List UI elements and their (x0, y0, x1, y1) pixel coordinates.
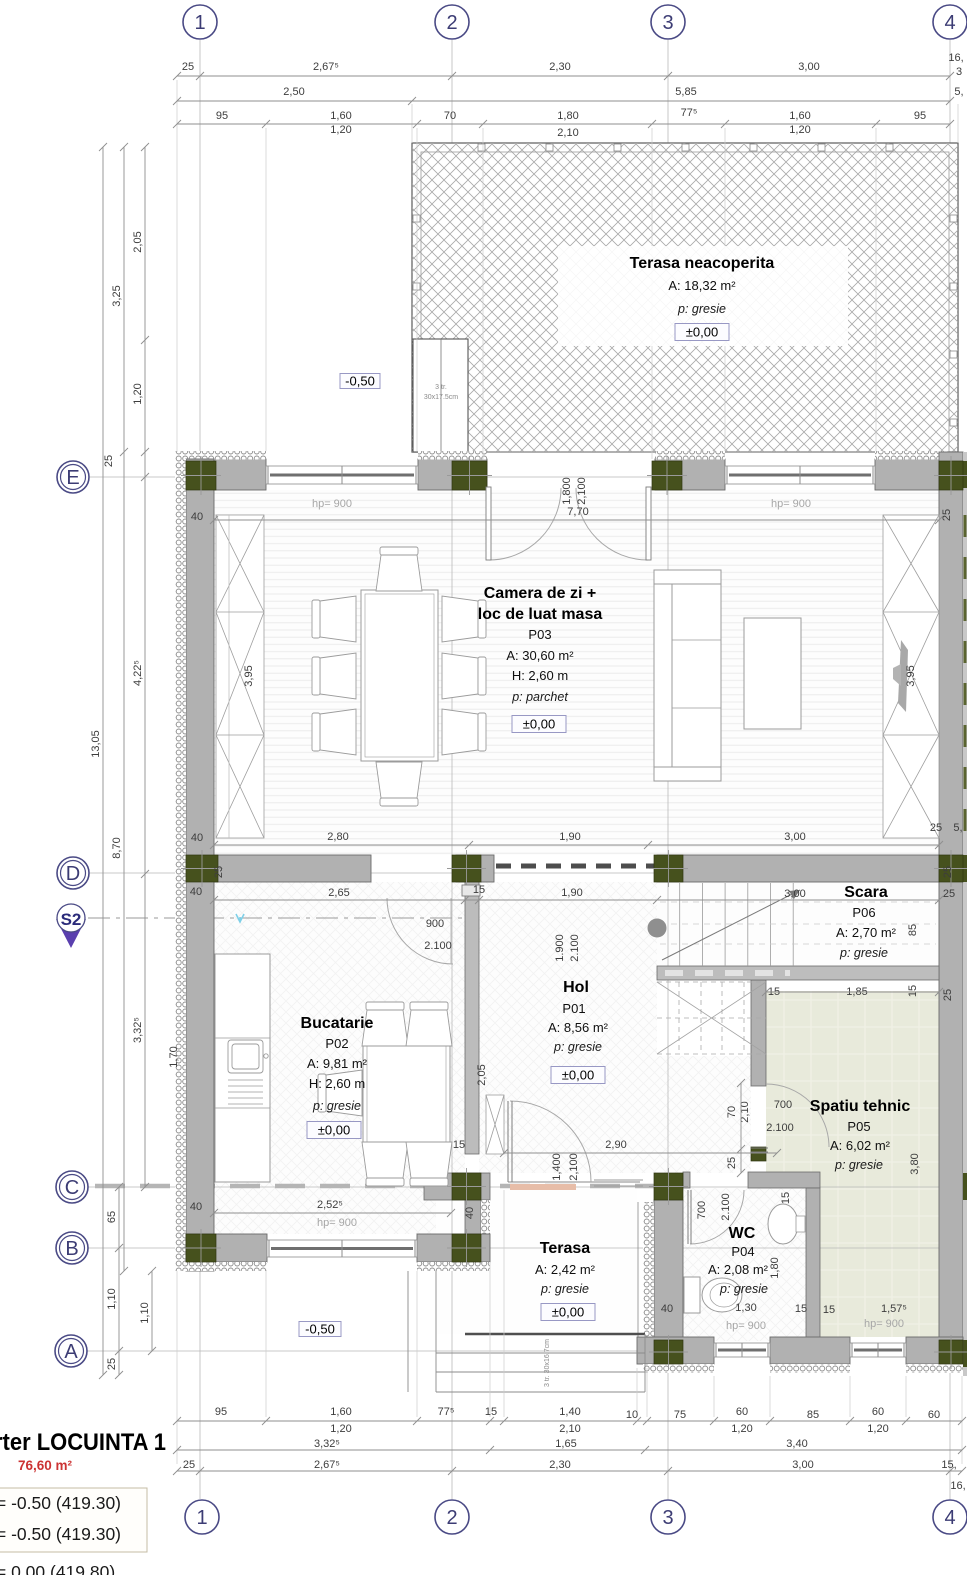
svg-text:25: 25 (943, 888, 955, 900)
svg-text:S2: S2 (61, 910, 82, 929)
svg-text:D: D (66, 863, 80, 885)
svg-text:5,: 5, (954, 86, 963, 98)
svg-text:1,20: 1,20 (330, 124, 351, 136)
svg-text:2,100: 2,100 (576, 477, 588, 505)
svg-text:60: 60 (872, 1406, 884, 1418)
svg-text:1.900: 1.900 (554, 934, 566, 962)
svg-text:1,65: 1,65 (555, 1438, 576, 1450)
svg-text:30x17.5cm: 30x17.5cm (424, 394, 458, 401)
svg-text:3,95: 3,95 (243, 665, 255, 686)
svg-text:2,80: 2,80 (327, 831, 348, 843)
svg-text:5,: 5, (953, 822, 962, 834)
svg-text:40: 40 (191, 511, 203, 523)
svg-text:16,: 16, (950, 1480, 965, 1492)
svg-text:10: 10 (626, 1409, 638, 1421)
svg-text:= -0.50 (419.30): = -0.50 (419.30) (0, 1493, 121, 1513)
svg-text:2,30: 2,30 (549, 1459, 570, 1471)
svg-text:loc de luat masa: loc de luat masa (478, 606, 603, 623)
svg-text:3,00: 3,00 (784, 831, 805, 843)
svg-text:15: 15 (453, 1139, 465, 1151)
svg-text:75: 75 (674, 1409, 686, 1421)
svg-text:WC: WC (729, 1225, 756, 1242)
svg-text:Camera de zi +: Camera de zi + (484, 585, 597, 602)
svg-text:p: gresie: p: gresie (719, 1282, 768, 1296)
svg-text:A: A (64, 1341, 78, 1363)
svg-text:77⁵: 77⁵ (681, 107, 698, 119)
svg-text:1,20: 1,20 (330, 1423, 351, 1435)
svg-text:1: 1 (196, 1507, 207, 1529)
svg-text:95: 95 (215, 1406, 227, 1418)
svg-text:±0,00: ±0,00 (523, 717, 555, 732)
svg-text:3,32⁵: 3,32⁵ (314, 1438, 340, 1450)
svg-text:7,70: 7,70 (567, 506, 588, 518)
svg-text:1,60: 1,60 (330, 1406, 351, 1418)
svg-text:rter LOCUINTA 1: rter LOCUINTA 1 (0, 1429, 166, 1456)
svg-text:700: 700 (774, 1099, 792, 1111)
svg-text:3,00: 3,00 (798, 61, 819, 73)
svg-text:hp= 900: hp= 900 (312, 498, 352, 510)
svg-text:-0,50: -0,50 (345, 374, 375, 389)
svg-text:2,05: 2,05 (476, 1064, 488, 1085)
svg-text:2.100: 2.100 (720, 1193, 732, 1221)
svg-text:1,57⁵: 1,57⁵ (881, 1303, 907, 1315)
svg-text:1,40: 1,40 (559, 1406, 580, 1418)
svg-text:P03: P03 (528, 627, 551, 642)
svg-text:25: 25 (213, 866, 225, 878)
svg-text:5,85: 5,85 (675, 86, 696, 98)
svg-text:76,60 m²: 76,60 m² (18, 1458, 73, 1473)
svg-text:1,10: 1,10 (139, 1302, 151, 1323)
svg-text:700: 700 (696, 1201, 708, 1219)
svg-text:25: 25 (182, 61, 194, 73)
svg-text:15: 15 (795, 1303, 807, 1315)
svg-text:2,90: 2,90 (605, 1139, 626, 1151)
svg-text:3 tr.: 3 tr. (435, 384, 447, 391)
svg-text:70: 70 (444, 110, 456, 122)
svg-text:1,80: 1,80 (557, 110, 578, 122)
svg-text:15,: 15, (941, 1459, 956, 1471)
svg-text:= 0.00 (419.80): = 0.00 (419.80) (0, 1562, 115, 1575)
svg-text:2,100: 2,100 (568, 1153, 580, 1181)
svg-text:2,05: 2,05 (132, 231, 144, 252)
svg-text:2,52⁵: 2,52⁵ (317, 1199, 343, 1211)
svg-text:40: 40 (464, 1207, 476, 1219)
svg-text:3: 3 (662, 12, 673, 34)
svg-text:A: 8,56 m²: A: 8,56 m² (548, 1020, 609, 1035)
svg-text:25: 25 (942, 866, 954, 878)
svg-text:1,800: 1,800 (561, 477, 573, 505)
svg-text:±0,00: ±0,00 (686, 325, 718, 340)
svg-text:1,90: 1,90 (559, 831, 580, 843)
svg-text:2,30: 2,30 (549, 61, 570, 73)
svg-text:A: 2,08 m²: A: 2,08 m² (708, 1262, 769, 1277)
svg-text:1,20: 1,20 (731, 1423, 752, 1435)
svg-text:2.100: 2.100 (569, 934, 581, 962)
svg-text:16,: 16, (948, 52, 963, 64)
svg-text:H: 2,60 m: H: 2,60 m (512, 668, 568, 683)
svg-text:2,67⁵: 2,67⁵ (313, 61, 339, 73)
svg-text:A: 9,81 m²: A: 9,81 m² (307, 1056, 368, 1071)
svg-text:-0,50: -0,50 (305, 1322, 335, 1337)
svg-text:3,40: 3,40 (786, 1438, 807, 1450)
svg-text:15: 15 (473, 884, 485, 896)
svg-text:25: 25 (183, 1459, 195, 1471)
svg-text:25: 25 (942, 989, 954, 1001)
svg-text:Terasa neacoperita: Terasa neacoperita (630, 255, 775, 272)
svg-text:2: 2 (446, 1507, 457, 1529)
svg-text:4: 4 (944, 1507, 955, 1529)
svg-text:A: 30,60 m²: A: 30,60 m² (506, 648, 574, 663)
svg-text:2,10: 2,10 (559, 1423, 580, 1435)
svg-text:40: 40 (661, 1303, 673, 1315)
svg-text:Terasa: Terasa (540, 1240, 591, 1257)
svg-text:1: 1 (194, 12, 205, 34)
svg-text:1,30: 1,30 (735, 1302, 756, 1314)
svg-text:1,20: 1,20 (132, 383, 144, 404)
svg-text:1,60: 1,60 (330, 110, 351, 122)
svg-text:C: C (65, 1177, 79, 1199)
svg-text:25: 25 (103, 455, 115, 467)
svg-text:3,25: 3,25 (111, 285, 123, 306)
svg-text:4: 4 (944, 12, 955, 34)
svg-text:A: 2,42 m²: A: 2,42 m² (535, 1262, 596, 1277)
svg-text:3,00: 3,00 (784, 888, 805, 900)
svg-text:p: gresie: p: gresie (834, 1158, 883, 1172)
svg-text:1,20: 1,20 (789, 124, 810, 136)
svg-text:40: 40 (191, 832, 203, 844)
svg-text:25: 25 (941, 509, 953, 521)
svg-text:P06: P06 (852, 905, 875, 920)
svg-text:2,67⁵: 2,67⁵ (314, 1459, 340, 1471)
svg-text:8,70: 8,70 (111, 837, 123, 858)
svg-text:900: 900 (426, 918, 444, 930)
svg-text:2: 2 (446, 12, 457, 34)
svg-text:3 tr. 30x16.7cm: 3 tr. 30x16.7cm (544, 1339, 551, 1387)
svg-text:A: 18,32 m²: A: 18,32 m² (668, 278, 736, 293)
svg-text:85: 85 (807, 1409, 819, 1421)
svg-text:70: 70 (726, 1106, 738, 1118)
svg-text:3: 3 (662, 1507, 673, 1529)
svg-text:2,50: 2,50 (283, 86, 304, 98)
svg-text:1,10: 1,10 (106, 1288, 118, 1309)
svg-text:p: gresie: p: gresie (677, 302, 726, 316)
svg-text:Hol: Hol (563, 979, 589, 996)
svg-text:40: 40 (190, 1201, 202, 1213)
svg-text:65: 65 (106, 1211, 118, 1223)
svg-text:40: 40 (190, 886, 202, 898)
svg-text:3,32⁵: 3,32⁵ (132, 1017, 144, 1043)
svg-text:p: gresie: p: gresie (540, 1282, 589, 1296)
svg-text:hp= 900: hp= 900 (726, 1320, 766, 1332)
svg-text:1,400: 1,400 (551, 1153, 563, 1181)
svg-text:25: 25 (930, 822, 942, 834)
svg-text:1,20: 1,20 (867, 1423, 888, 1435)
svg-text:Spatiu tehnic: Spatiu tehnic (810, 1098, 911, 1115)
svg-text:95: 95 (914, 110, 926, 122)
svg-text:hp= 900: hp= 900 (317, 1217, 357, 1229)
svg-text:±0,00: ±0,00 (318, 1123, 350, 1138)
svg-text:Scara: Scara (844, 884, 888, 901)
svg-text:hp= 900: hp= 900 (771, 498, 811, 510)
svg-text:1,70: 1,70 (168, 1046, 180, 1067)
svg-text:= -0.50 (419.30): = -0.50 (419.30) (0, 1524, 121, 1544)
svg-text:p: gresie: p: gresie (312, 1099, 361, 1113)
svg-text:2,10: 2,10 (557, 127, 578, 139)
svg-text:15: 15 (907, 985, 919, 997)
svg-text:1,60: 1,60 (789, 110, 810, 122)
svg-text:A: 2,70 m²: A: 2,70 m² (836, 925, 897, 940)
svg-text:P01: P01 (562, 1001, 585, 1016)
svg-text:95: 95 (216, 110, 228, 122)
svg-text:85: 85 (907, 924, 919, 936)
svg-text:60: 60 (736, 1406, 748, 1418)
svg-text:2.100: 2.100 (424, 940, 452, 952)
svg-text:3,00: 3,00 (792, 1459, 813, 1471)
svg-text:p: parchet: p: parchet (511, 690, 568, 704)
svg-text:25: 25 (106, 1358, 118, 1370)
svg-text:2,65: 2,65 (328, 887, 349, 899)
svg-text:±0,00: ±0,00 (552, 1305, 584, 1320)
svg-text:15: 15 (823, 1304, 835, 1316)
svg-text:p: gresie: p: gresie (839, 946, 888, 960)
svg-text:13,05: 13,05 (90, 730, 102, 758)
svg-text:77⁵: 77⁵ (438, 1406, 455, 1418)
svg-text:15: 15 (485, 1406, 497, 1418)
svg-text:±0,00: ±0,00 (562, 1068, 594, 1083)
svg-text:1,80: 1,80 (769, 1257, 781, 1278)
svg-text:1,90: 1,90 (561, 887, 582, 899)
svg-text:E: E (66, 467, 79, 489)
svg-text:A: 6,02 m²: A: 6,02 m² (830, 1138, 891, 1153)
svg-text:3,95: 3,95 (905, 665, 917, 686)
svg-text:60: 60 (928, 1409, 940, 1421)
svg-text:15: 15 (780, 1192, 792, 1204)
svg-text:hp= 900: hp= 900 (864, 1318, 904, 1330)
svg-text:4,22⁵: 4,22⁵ (132, 660, 144, 686)
svg-text:B: B (65, 1238, 78, 1260)
svg-text:H: 2,60 m: H: 2,60 m (309, 1076, 365, 1091)
svg-text:25: 25 (726, 1157, 738, 1169)
svg-text:P02: P02 (325, 1036, 348, 1051)
svg-text:3,80: 3,80 (909, 1153, 921, 1174)
svg-text:P04: P04 (731, 1244, 754, 1259)
svg-text:3: 3 (956, 66, 962, 78)
svg-text:Bucatarie: Bucatarie (301, 1015, 374, 1032)
svg-text:p: gresie: p: gresie (553, 1040, 602, 1054)
svg-text:P05: P05 (847, 1119, 870, 1134)
svg-text:2.100: 2.100 (766, 1122, 794, 1134)
